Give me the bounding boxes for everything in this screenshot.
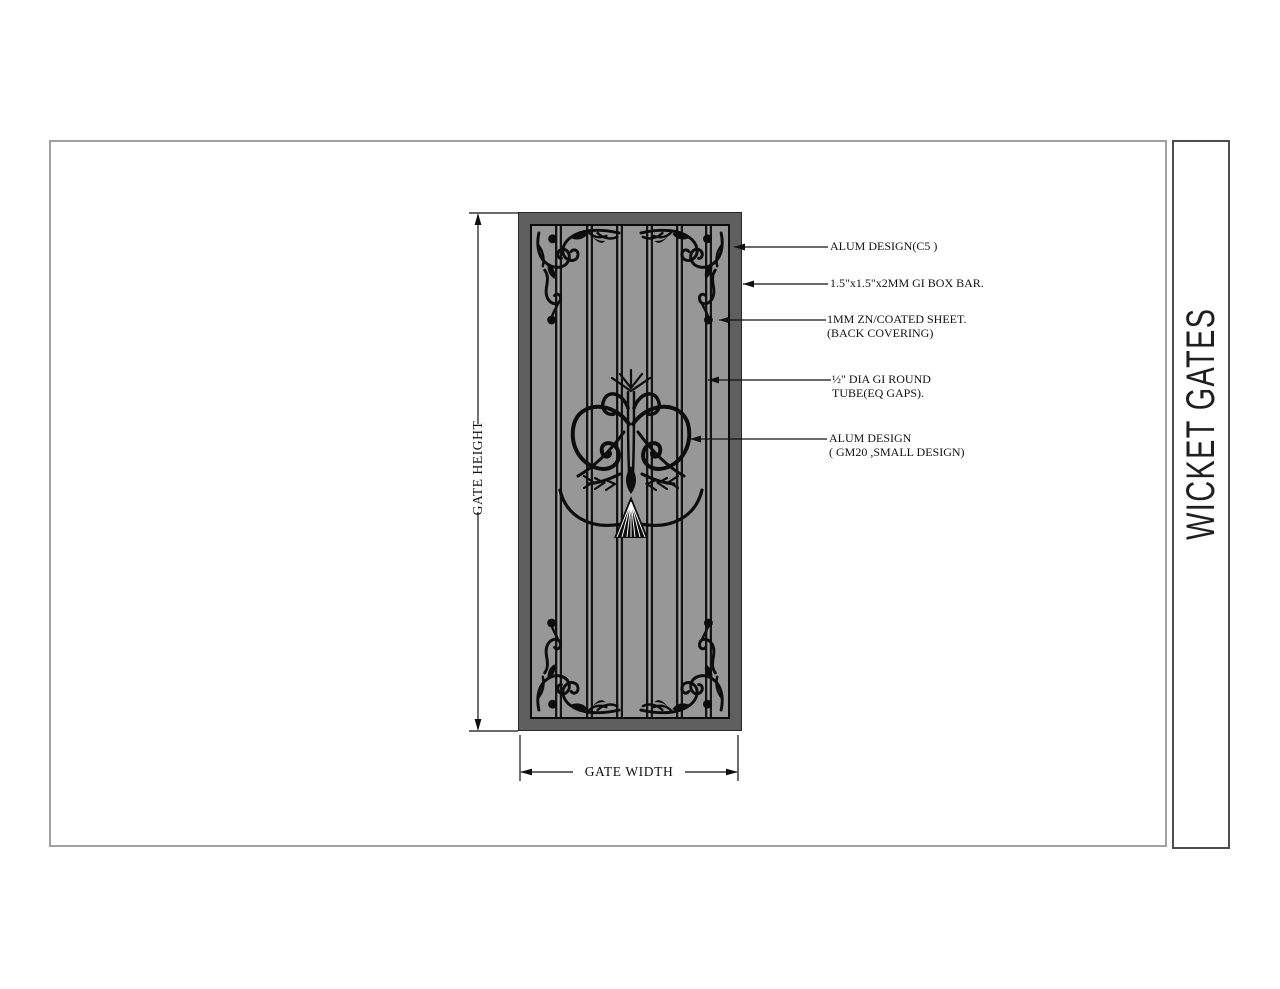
annotation-alum-design-gm20: ALUM DESIGN ( GM20 ,SMALL DESIGN) (829, 432, 965, 459)
annotation-line: ALUM DESIGN (829, 432, 965, 446)
annotation-line: ALUM DESIGN(C5 ) (830, 240, 937, 254)
corner-ornament-bottom-right (637, 618, 727, 716)
annotation-line: ½" DIA GI ROUND (832, 373, 931, 387)
corner-ornament-bottom-left (533, 618, 623, 716)
annotation-line: ( GM20 ,SMALL DESIGN) (829, 446, 965, 460)
annotation-gi-box-bar: 1.5"x1.5"x2MM GI BOX BAR. (830, 277, 984, 291)
gate-height-dimension-label: GATE HEIGHT (468, 418, 488, 518)
title-block-text: WICKET GATES (1179, 274, 1223, 574)
drawing-title: WICKET GATES (1179, 308, 1224, 540)
gate-width-dimension-label: GATE WIDTH (574, 763, 684, 781)
corner-ornament-top-right (637, 227, 727, 325)
annotation-gi-round-tube: ½" DIA GI ROUND TUBE(EQ GAPS). (832, 373, 931, 400)
annotation-line: 1.5"x1.5"x2MM GI BOX BAR. (830, 277, 984, 291)
gate-back-sheet-panel (530, 224, 730, 719)
center-ornament (554, 366, 708, 564)
corner-ornament-top-left (533, 227, 623, 325)
annotation-zn-coated-sheet: 1MM ZN/COATED SHEET. (BACK COVERING) (827, 313, 966, 340)
annotation-line: 1MM ZN/COATED SHEET. (827, 313, 966, 327)
annotation-alum-design-c5: ALUM DESIGN(C5 ) (830, 240, 937, 254)
drawing-canvas: WICKET GATES (0, 0, 1280, 989)
gate-drawing (518, 212, 742, 731)
annotation-line: (BACK COVERING) (827, 327, 966, 341)
annotation-line: TUBE(EQ GAPS). (832, 387, 931, 401)
